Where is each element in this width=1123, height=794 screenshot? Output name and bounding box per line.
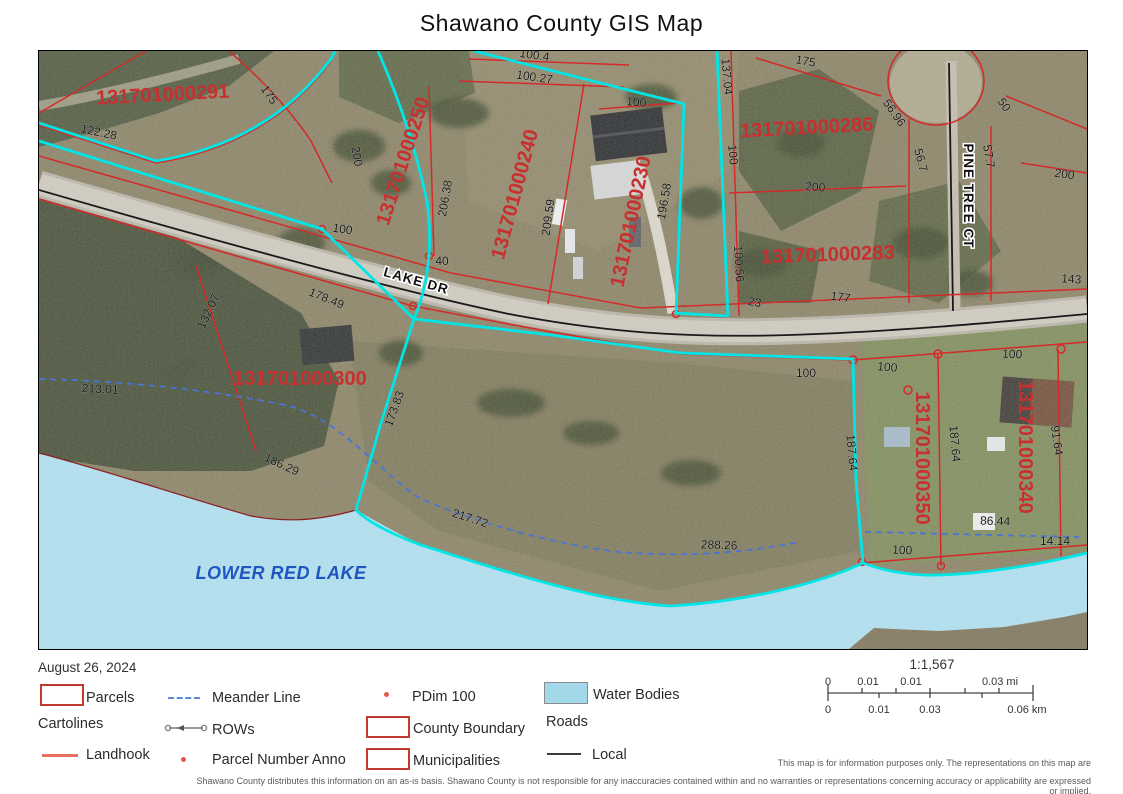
svg-text:0.06 km: 0.06 km [1007, 704, 1046, 716]
parcel-number-anno-swatch [181, 757, 186, 762]
parcel-number-label: 131701000283 [761, 242, 895, 269]
dimension-label: 177 [830, 289, 852, 306]
county-boundary-swatch [366, 716, 410, 738]
dimension-label: 100 [626, 94, 647, 109]
dimension-label: 200 [805, 179, 826, 194]
dimension-label: 100 [1002, 346, 1023, 361]
legend-county-boundary: County Boundary [413, 721, 525, 737]
parcels-swatch [40, 684, 84, 706]
legend-landhook: Landhook [86, 747, 150, 763]
page-title: Shawano County GIS Map [0, 10, 1123, 37]
parcel-number-label: 131701000350 [911, 391, 933, 524]
dimension-label: 100 [725, 144, 741, 165]
dimension-label: 100 [332, 221, 354, 238]
dimension-label: 213.01 [82, 381, 120, 397]
dimension-label: 86.44 [980, 513, 1011, 528]
svg-text:0.03 mi: 0.03 mi [982, 676, 1018, 688]
svg-text:0: 0 [825, 704, 831, 716]
dimension-label: 100 [877, 359, 898, 375]
svg-text:0.01: 0.01 [900, 676, 921, 688]
legend-pdim-100: PDim 100 [412, 689, 476, 705]
rows-swatch [163, 722, 209, 734]
aerial-grain-texture [39, 51, 1087, 649]
lake-name-label: LOWER RED LAKE [196, 563, 367, 583]
dimension-label: 23 [747, 294, 763, 310]
legend-water-bodies: Water Bodies [593, 687, 680, 703]
dimension-label: 100 [892, 542, 913, 557]
water-bodies-swatch [544, 682, 588, 704]
meander-swatch [168, 697, 200, 699]
legend-roads: Roads [546, 714, 588, 730]
pdim-swatch [384, 692, 389, 697]
road-label: PINE TREE CT [961, 143, 976, 248]
legend-parcels: Parcels [86, 690, 134, 706]
disclaimer-line-2: Shawano County distributes this informat… [191, 776, 1091, 794]
dimension-label: 143 [1061, 271, 1082, 286]
dimension-label: 14.14 [1040, 534, 1070, 548]
dimension-label: 100.56 [731, 245, 747, 283]
dimension-label: 288.26 [701, 537, 738, 552]
local-road-swatch [547, 753, 581, 755]
svg-text:0.03: 0.03 [919, 704, 940, 716]
map-export-page: Shawano County GIS Map [0, 0, 1123, 794]
legend-meander-line: Meander Line [212, 690, 301, 706]
map-image: 175122.28200100206.3840209.59100.4100.27… [38, 50, 1088, 650]
svg-text:0.01: 0.01 [868, 704, 889, 716]
scale-bar: 1:1,567 0 0.01 0.01 0.03 mi 0 0.01 0.03 … [815, 655, 1085, 721]
dimension-label: 100 [796, 366, 816, 380]
landhook-swatch [42, 754, 78, 757]
legend-rows: ROWs [212, 722, 255, 738]
aerial-map-canvas: 175122.28200100206.3840209.59100.4100.27… [39, 51, 1087, 649]
legend-cartolines: Cartolines [38, 716, 103, 732]
disclaimer-line-1: This map is for information purposes onl… [191, 758, 1091, 768]
svg-text:0.01: 0.01 [857, 676, 878, 688]
map-date: August 26, 2024 [38, 660, 136, 675]
parcel-number-label: 131701000340 [1014, 380, 1036, 513]
scale-ratio: 1:1,567 [909, 657, 954, 672]
dimension-label: 200 [1054, 166, 1076, 183]
parcel-number-label: 131701000300 [233, 368, 366, 390]
dimension-label: 40 [435, 254, 449, 268]
